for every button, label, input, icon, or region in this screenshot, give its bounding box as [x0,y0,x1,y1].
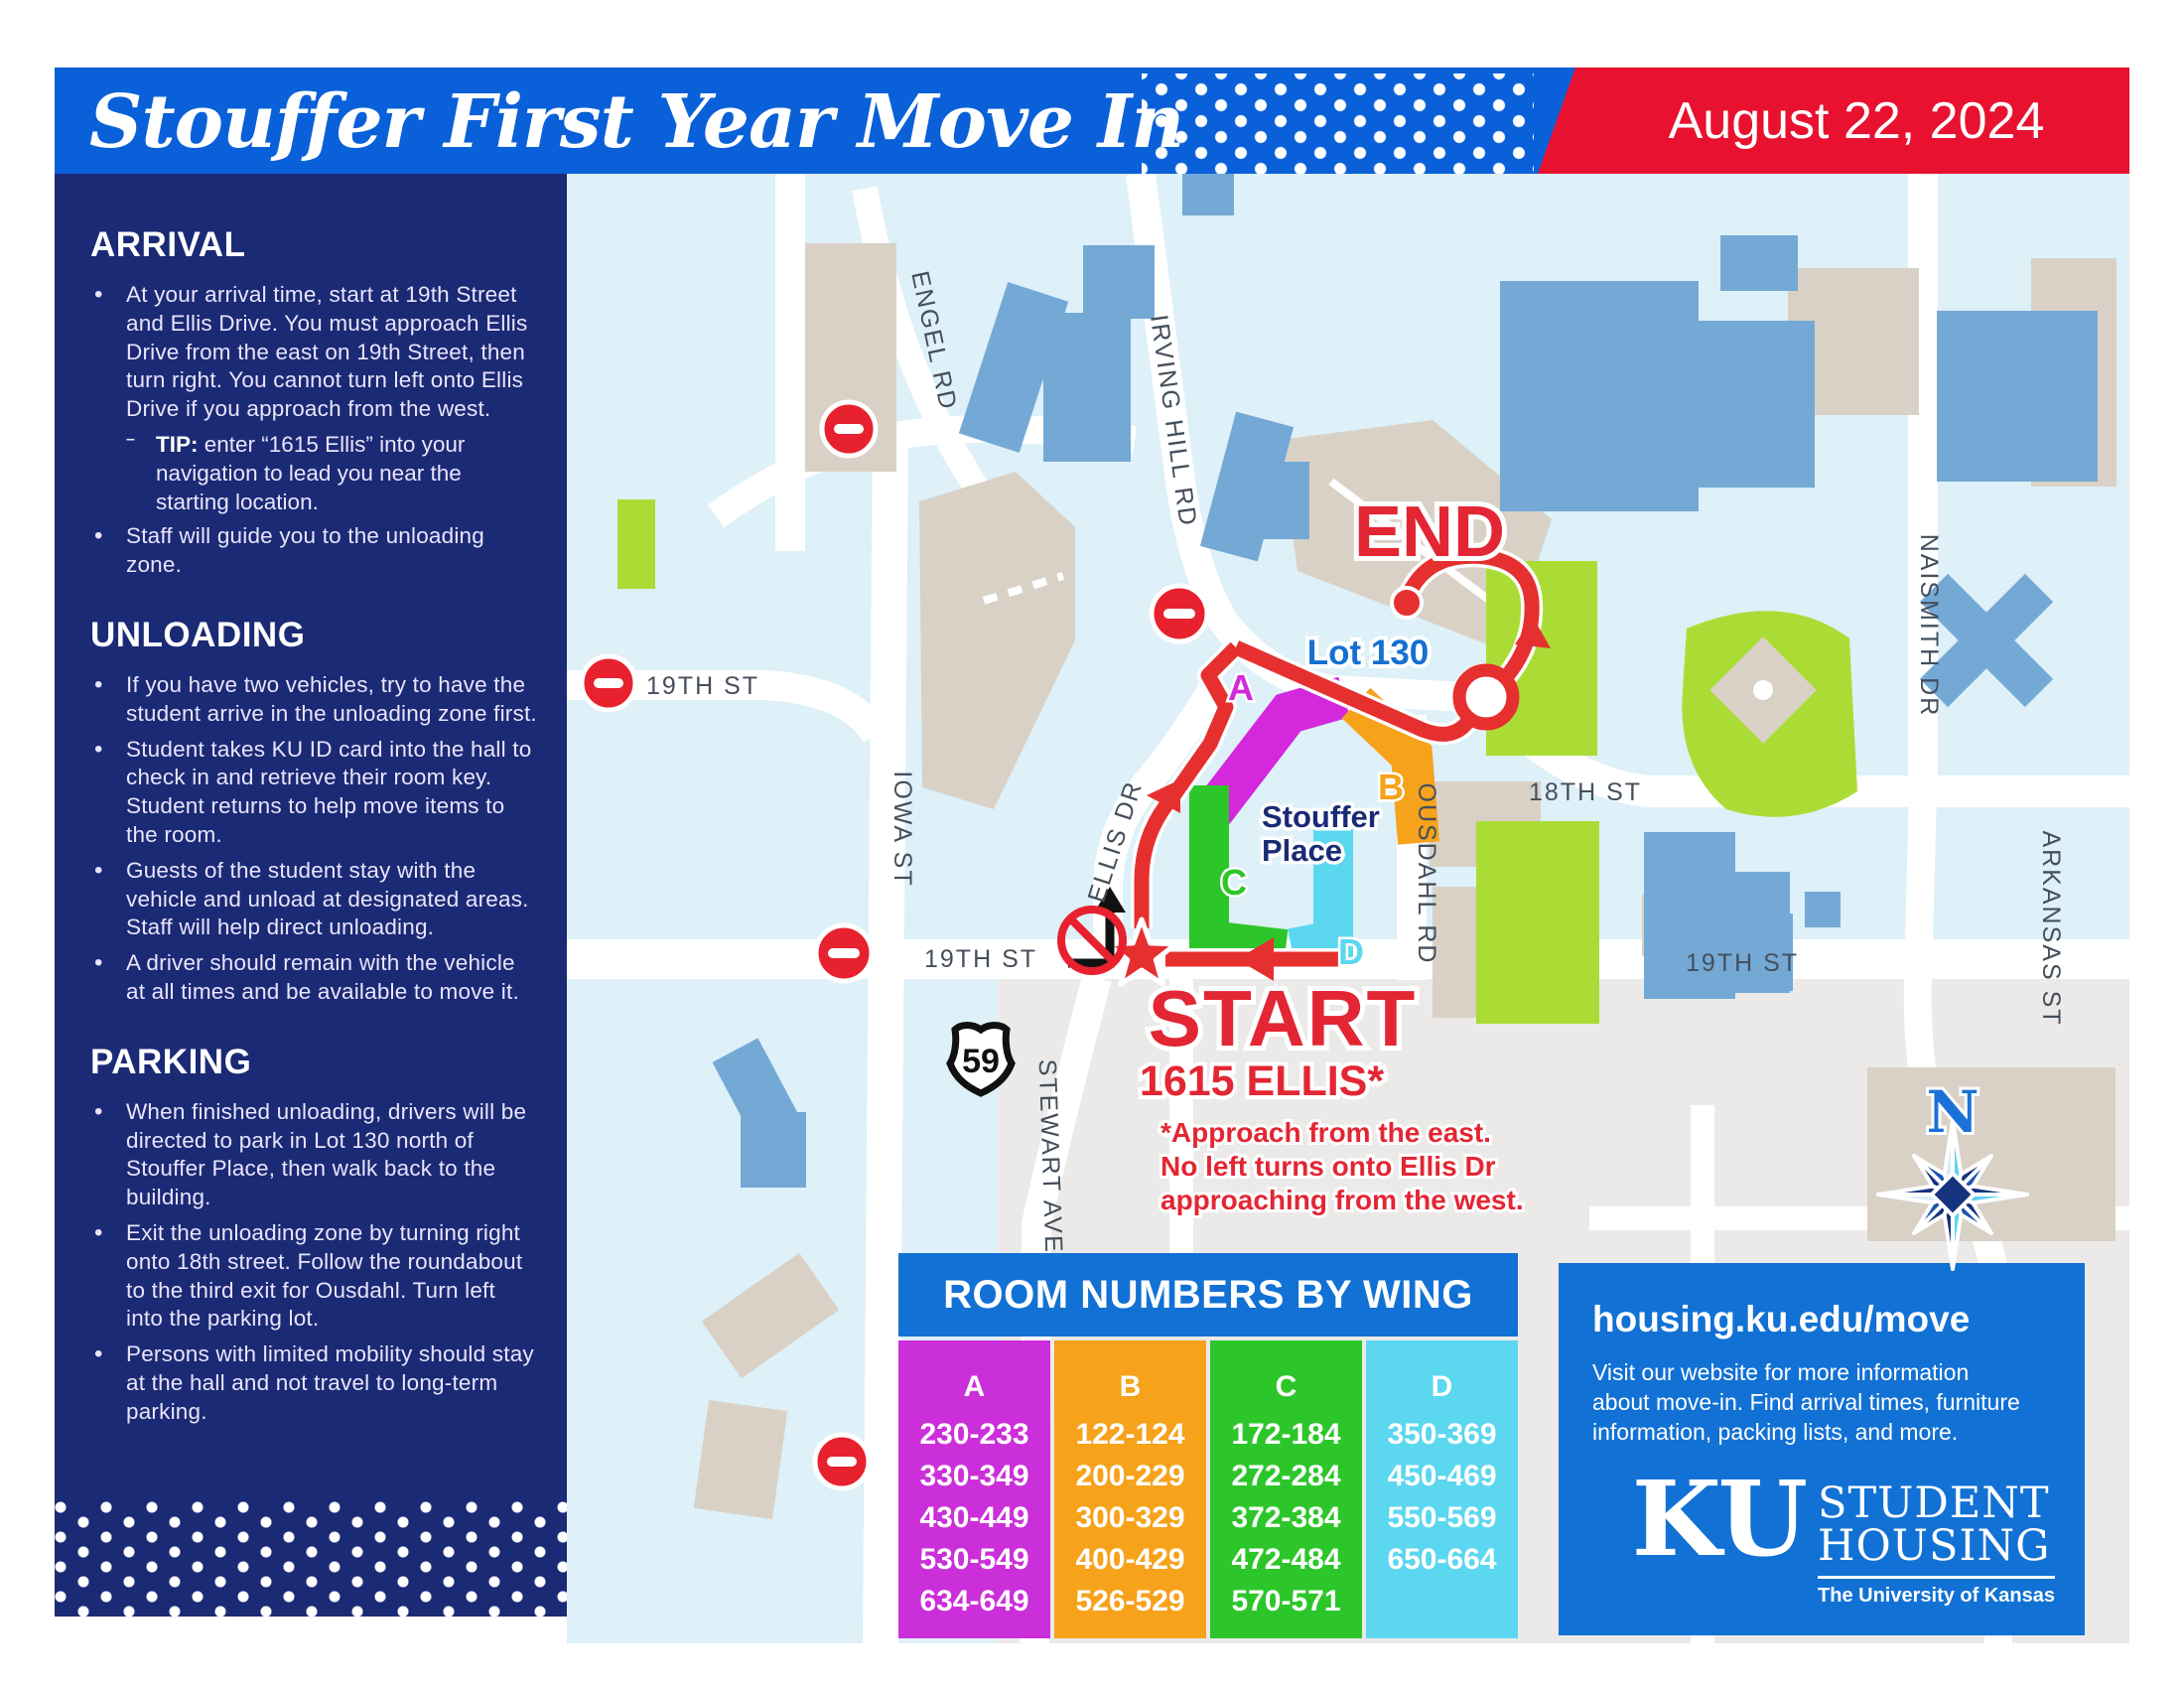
room-table-columns: A 230-233330-349430-449530-549634-649 B … [898,1340,1518,1638]
list-item-text: If you have two vehicles, try to have th… [126,671,537,729]
list-item-text: Staff will guide you to the unloading zo… [126,522,537,580]
section-parking: PARKING When finished unloading, drivers… [90,1043,537,1427]
building [1182,174,1234,215]
room-range: 400-429 [1054,1539,1206,1581]
compass-rose: N [1858,1070,2047,1284]
ku-mark: KU [1632,1473,1808,1566]
bullet-icon [90,1098,126,1212]
building [1937,311,2098,482]
room-range: 450-469 [1366,1456,1518,1497]
bullet-icon [90,522,126,580]
route-note-line3: approaching from the west. [1160,1185,1524,1215]
building [1720,235,1798,291]
list-item: Student takes KU ID card into the hall t… [90,736,537,850]
wing-d-label: D [1338,931,1364,972]
room-range: 372-384 [1210,1497,1362,1539]
room-range: 330-349 [898,1456,1050,1497]
street-label-19th-west: 19TH ST [646,672,759,700]
start-marker: START [1149,974,1418,1062]
building [741,1112,806,1188]
room-range: 200-229 [1054,1456,1206,1497]
lot-130-label: Lot 130 [1307,633,1430,672]
no-entry-icon [1152,586,1207,641]
list-item: If you have two vehicles, try to have th… [90,671,537,729]
header-date: August 22, 2024 [1608,70,2105,172]
street-iowa [881,427,890,1643]
room-range: 300-329 [1054,1497,1206,1539]
start-address: 1615 ELLIS* [1140,1057,1384,1105]
building [1262,462,1309,539]
tip-label: TIP: [156,432,199,457]
street-label-arkansas: ARKANSAS ST [2037,830,2065,1026]
room-range: 122-124 [1054,1414,1206,1456]
section-unloading: UNLOADING If you have two vehicles, try … [90,616,537,1007]
list-item-text: Exit the unloading zone by turning right… [126,1219,537,1334]
list-item-text: When finished unloading, drivers will be… [126,1098,537,1212]
room-range: 570-571 [1210,1581,1362,1622]
info-box: housing.ku.edu/move Visit our website fo… [1559,1263,2085,1635]
route-note-line2: No left turns onto Ellis Dr [1160,1151,1496,1182]
room-range: 430-449 [898,1497,1050,1539]
sidebar: ARRIVAL At your arrival time, start at 1… [55,174,567,1617]
grass [1476,821,1599,1024]
end-marker: END [1354,492,1505,572]
street-label-irving: IRVING HILL RD [1145,313,1202,528]
dots-pattern [55,1501,567,1617]
room-range: 650-664 [1366,1539,1518,1581]
list-item-text: Persons with limited mobility should sta… [126,1340,537,1426]
highway-number: 59 [962,1043,1000,1080]
room-ranges: 230-233330-349430-449530-549634-649 [898,1414,1050,1622]
list-item: Guests of the student stay with the vehi… [90,857,537,942]
wing-a-label: A [1228,667,1254,708]
list-item-text: At your arrival time, start at 19th Stre… [126,281,537,424]
stouffer-label-line1: Stouffer [1262,799,1380,834]
room-range: 230-233 [898,1414,1050,1456]
bullet-icon [90,949,126,1007]
list-item: A driver should remain with the vehicle … [90,949,537,1007]
tip-text: TIP: enter “1615 Ellis” into your naviga… [156,431,537,516]
bullet-icon [90,857,126,942]
ku-student-housing-logo: KU STUDENT HOUSING The University of Kan… [1632,1473,2055,1608]
list-item-text: Guests of the student stay with the vehi… [126,857,537,942]
room-range: 272-284 [1210,1456,1362,1497]
grass [617,499,655,589]
list-item-text: Student takes KU ID card into the hall t… [126,736,537,850]
dash-icon [126,431,156,516]
street-label-18th: 18TH ST [1529,778,1642,806]
no-entry-icon [816,925,872,981]
no-entry-icon [815,1435,869,1488]
street-label-ousdahl: OUSDAHL RD [1413,783,1440,965]
highway-59-shield: 59 [950,1026,1012,1094]
section-heading-unloading: UNLOADING [90,616,537,655]
room-table-title: ROOM NUMBERS BY WING [898,1253,1518,1336]
wing-c-label: C [1221,862,1247,903]
street-label-iowa: IOWA ST [888,771,916,887]
page-title: Stouffer First Year Move In [89,70,1183,174]
wing-letter: A [898,1370,1050,1404]
room-range: 472-484 [1210,1539,1362,1581]
building [1805,892,1841,927]
street-label-19th-mid: 19TH ST [924,945,1037,973]
bullet-icon [90,1340,126,1426]
list-subitem: TIP: enter “1615 Ellis” into your naviga… [90,431,537,516]
wing-b-label: B [1378,767,1404,807]
building [1043,313,1131,462]
room-ranges: 350-369450-469550-569650-664 [1366,1414,1518,1581]
section-heading-parking: PARKING [90,1043,537,1082]
list-item: Persons with limited mobility should sta… [90,1340,537,1426]
no-entry-icon [822,402,876,456]
list-item: Staff will guide you to the unloading zo… [90,522,537,580]
stouffer-label-line2: Place [1262,833,1342,868]
compass-north-label: N [1926,1078,1979,1146]
street-label-naismith: NAISMITH DR [1915,534,1943,718]
room-ranges: 122-124200-229300-329400-429526-529 [1054,1414,1206,1622]
bullet-icon [90,281,126,424]
section-heading-arrival: ARRIVAL [90,225,537,265]
logo-housing: HOUSING [1818,1525,2050,1568]
logo-student: STUDENT [1818,1482,2050,1525]
wing-c-column: C 172-184272-284372-384472-484570-571 [1210,1340,1362,1638]
room-range: 172-184 [1210,1414,1362,1456]
room-range: 526-529 [1054,1581,1206,1622]
wing-letter: B [1054,1370,1206,1404]
wing-letter: C [1210,1370,1362,1404]
building [1664,321,1815,488]
room-range: 530-549 [898,1539,1050,1581]
room-range: 350-369 [1366,1414,1518,1456]
grass [1486,561,1597,756]
building [919,472,1075,809]
bullet-icon [90,736,126,850]
bullet-icon [90,671,126,729]
section-arrival: ARRIVAL At your arrival time, start at 1… [90,225,537,580]
building [694,1400,788,1519]
building [702,1253,839,1378]
room-range: 634-649 [898,1581,1050,1622]
website-url: housing.ku.edu/move [1592,1299,2051,1340]
route-roundabout [1459,670,1513,724]
bullet-icon [90,1219,126,1334]
wing-letter: D [1366,1370,1518,1404]
wing-b-column: B 122-124200-229300-329400-429526-529 [1054,1340,1206,1638]
list-item: Exit the unloading zone by turning right… [90,1219,537,1334]
dots-pattern [1142,73,1534,177]
room-ranges: 172-184272-284372-384472-484570-571 [1210,1414,1362,1622]
wing-d-column: D 350-369450-469550-569650-664 [1366,1340,1518,1638]
street-label-19th-east: 19TH ST [1686,949,1799,977]
website-description: Visit our website for more information a… [1592,1358,2029,1448]
route-note-line1: *Approach from the east. [1160,1117,1491,1148]
building [1083,245,1155,319]
list-item-text: A driver should remain with the vehicle … [126,949,537,1007]
logo-rule [1818,1576,2055,1579]
logo-university: The University of Kansas [1818,1585,2055,1608]
flyer-page: Stouffer First Year Move In August 22, 2… [0,0,2184,1688]
route-end-dot [1392,588,1422,618]
no-entry-icon [582,656,635,710]
room-numbers-panel: ROOM NUMBERS BY WING A 230-233330-349430… [898,1253,1518,1638]
list-item: When finished unloading, drivers will be… [90,1098,537,1212]
list-item: At your arrival time, start at 19th Stre… [90,281,537,424]
room-range: 550-569 [1366,1497,1518,1539]
wing-a-column: A 230-233330-349430-449530-549634-649 [898,1340,1050,1638]
